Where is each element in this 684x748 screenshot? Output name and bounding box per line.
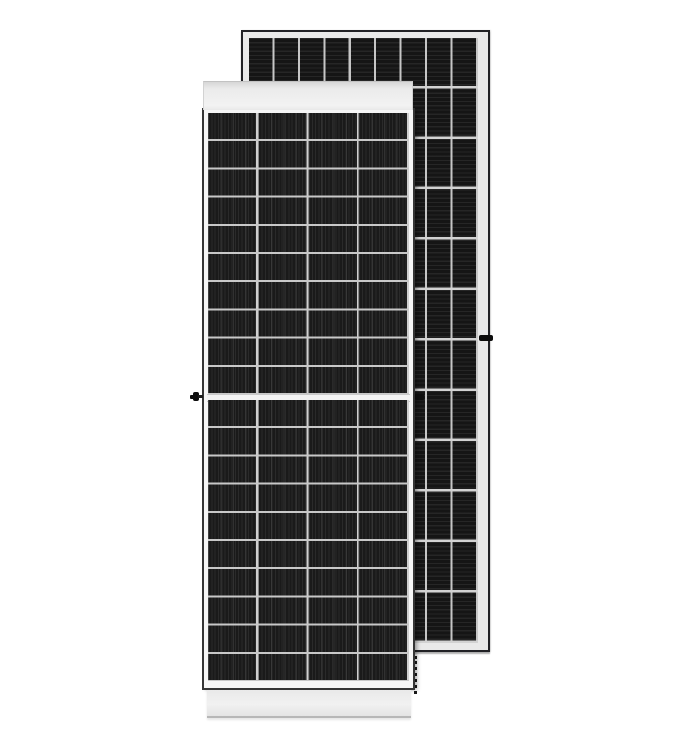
front-panel-top-frame-rail	[203, 81, 413, 110]
front-panel-upper-cell-grid	[208, 113, 409, 394]
grounding-knob-stem	[198, 395, 203, 398]
front-solar-panel	[202, 108, 415, 690]
front-panel-lower-cell-grid	[208, 400, 409, 681]
grounding-knob-nub	[190, 395, 194, 400]
rear-panel-left-tab	[415, 394, 424, 400]
rear-panel-right-tab	[479, 335, 493, 341]
front-panel-bottom-frame-rail	[207, 690, 411, 718]
product-image-canvas	[0, 0, 684, 748]
